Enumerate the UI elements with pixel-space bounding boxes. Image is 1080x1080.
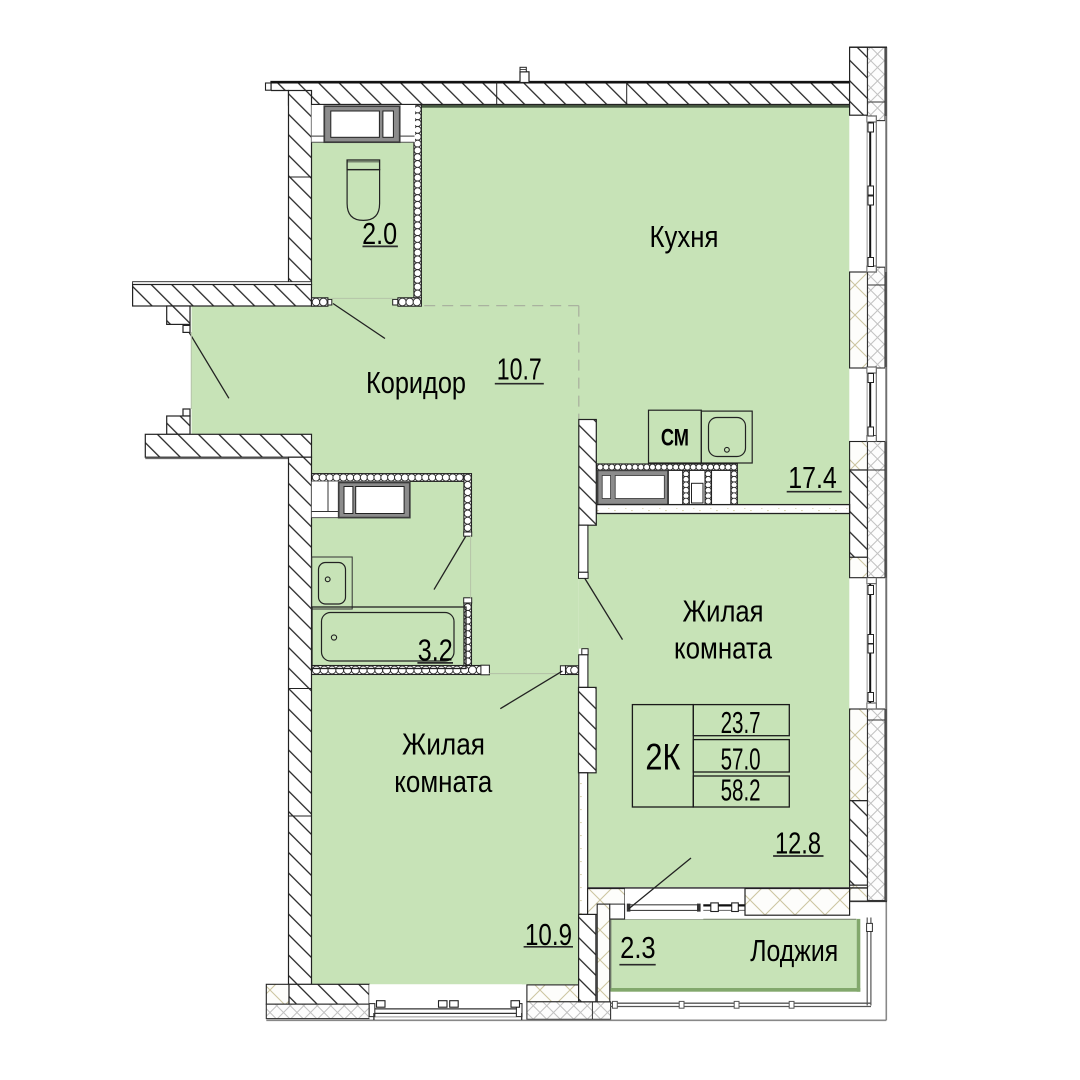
svg-text:2.3: 2.3 [620,930,656,965]
svg-text:комната: комната [674,631,773,666]
svg-text:Жилая: Жилая [683,593,764,628]
svg-text:Жилая: Жилая [402,727,485,762]
svg-text:57.0: 57.0 [721,741,761,776]
svg-text:2К: 2К [645,736,680,777]
svg-text:Коридор: Коридор [366,365,466,400]
svg-text:17.4: 17.4 [788,460,837,495]
svg-text:Кухня: Кухня [650,219,719,254]
svg-text:58.2: 58.2 [721,773,761,808]
svg-text:комната: комната [394,764,493,799]
svg-text:12.8: 12.8 [775,825,821,860]
svg-text:СМ: СМ [661,424,689,451]
svg-text:10.7: 10.7 [497,351,542,386]
svg-text:23.7: 23.7 [721,705,761,740]
svg-text:Лоджия: Лоджия [750,933,838,968]
